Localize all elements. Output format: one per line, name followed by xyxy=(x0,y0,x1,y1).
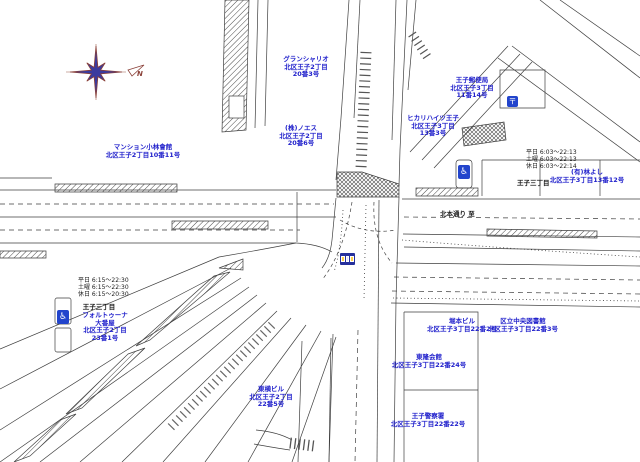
building-label-noesu: (株)ノエス 北区王子2丁目 20番6号 xyxy=(279,125,323,148)
bus-stop-name-right: 王子三丁目 xyxy=(517,177,550,187)
street-name-label: 北本通り 至 xyxy=(440,208,475,218)
label-line: 北区王子2丁目10番11号 xyxy=(106,152,181,160)
wheelchair-icon: ♿ xyxy=(458,165,470,179)
schedule-row: 休日 6:15〜20:30 xyxy=(78,291,129,298)
building-label-fortuna: フォルトゥーナ 大番屋 北区王子2丁目 23番1号 xyxy=(82,312,128,342)
building-label-hikari-heights: ヒカリハイツ王子 北区王子3丁目 13番3号 xyxy=(407,115,459,138)
label-line: 20番6号 xyxy=(279,140,323,148)
compass-north-label: N xyxy=(137,70,143,78)
bus-schedule-left: 平日 6:15〜22:30 土曜 6:15〜22:30 休日 6:15〜20:3… xyxy=(78,277,129,298)
building-label-toryu-kaikan: 東隆会館 北区王子3丁目22番24号 xyxy=(392,354,467,369)
label-line: 13番3号 xyxy=(407,130,459,138)
station-icon-dot xyxy=(346,256,350,262)
station-icon-dot xyxy=(350,256,354,262)
building-label-toyoko: 東横ビル 北区王子2丁目 22番5号 xyxy=(249,386,293,409)
bus-stop-name-left: 王子三丁目 xyxy=(83,301,116,311)
label-line: 北区王子3丁目22番24号 xyxy=(392,362,467,370)
building-label-gran-chariot: グランシャリオ 北区王子2丁目 20番3号 xyxy=(283,56,329,79)
wheelchair-icon: ♿ xyxy=(57,310,69,324)
building-label-horimoto: 堀本ビル 北区王子3丁目22番2号 xyxy=(427,318,497,333)
label-line: 北区王子3丁目22番2号 xyxy=(427,326,497,334)
label-line: 22番5号 xyxy=(249,401,293,409)
label-line: 北区王子3丁目13番12号 xyxy=(550,177,625,185)
building-label-oji-post-office: 王子郵便局 北区王子3丁目 11番14号 xyxy=(450,77,494,100)
schedule-row: 土曜 6:15〜22:30 xyxy=(78,284,129,291)
label-line: 20番3号 xyxy=(283,71,329,79)
schedule-row: 土曜 6:03〜22:13 xyxy=(526,156,577,163)
building-label-hayashi-yoshi: (有)林よし 北区王子3丁目13番12号 xyxy=(550,169,625,184)
schedule-row: 平日 6:15〜22:30 xyxy=(78,277,129,284)
label-line: 23番1号 xyxy=(82,335,128,343)
bus-schedule-right: 平日 6:03〜22:13 土曜 6:03〜22:13 休日 6:03〜22:1… xyxy=(526,149,577,170)
building-label-central-library: 区立中央図書館 北区王子3丁目22番3号 xyxy=(488,318,558,333)
post-office-icon: 〒 xyxy=(507,96,518,107)
station-icon-dot xyxy=(341,256,345,262)
label-line: 北区王子3丁目22番22号 xyxy=(391,421,466,429)
building-label-oji-police: 王子警察署 北区王子3丁目22番22号 xyxy=(391,413,466,428)
map-canvas: N グランシャリオ 北区王子2丁目 20番3号 (株)ノエス 北区王子2丁目 2… xyxy=(0,0,640,462)
schedule-row: 休日 6:03〜22:14 xyxy=(526,163,577,170)
station-entrance-icon xyxy=(340,253,355,265)
schedule-row: 平日 6:03〜22:13 xyxy=(526,149,577,156)
building-label-mansion-kobayashi: マンション小林會館 北区王子2丁目10番11号 xyxy=(106,144,181,159)
label-line: 11番14号 xyxy=(450,92,494,100)
label-line: 北区王子3丁目22番3号 xyxy=(488,326,558,334)
